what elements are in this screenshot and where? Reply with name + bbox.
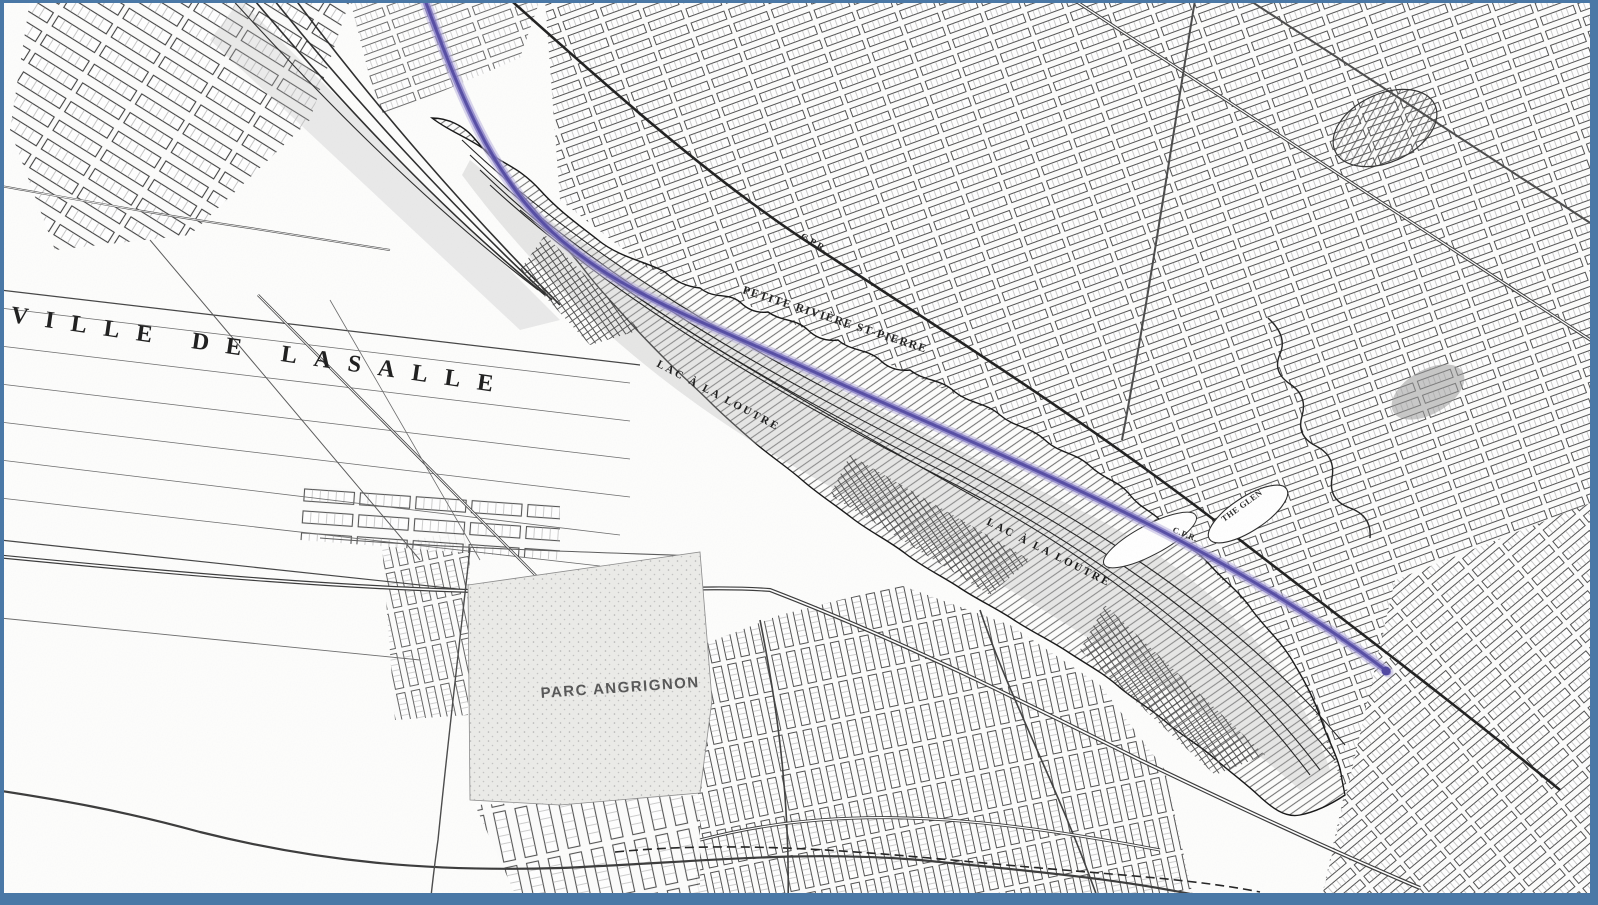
map-canvas: VILLE DE LASALLEPETITE RIVIÈRE ST-PIERRE… bbox=[0, 0, 1598, 905]
map-screenshot: VILLE DE LASALLEPETITE RIVIÈRE ST-PIERRE… bbox=[0, 0, 1598, 905]
paper-grain-overlay bbox=[0, 0, 1598, 905]
